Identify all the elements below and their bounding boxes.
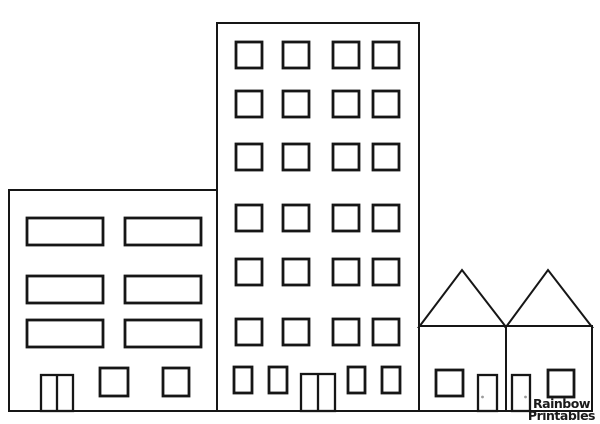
tower-building-window [333, 42, 359, 68]
tower-building-window [333, 205, 359, 231]
tower-building-window [333, 91, 359, 117]
apartment-building-window [100, 368, 128, 396]
tower-building-window [373, 205, 399, 231]
apartment-building-window [125, 218, 201, 245]
tower-building-window [283, 205, 309, 231]
apartment-building-window [125, 320, 201, 347]
tower-building-window [382, 367, 400, 393]
tower-building-window [236, 42, 262, 68]
tower-building-window [236, 205, 262, 231]
apartment-building-window [27, 320, 103, 347]
tower-building-window [373, 42, 399, 68]
tower-building-window [269, 367, 287, 393]
tower-building-window [373, 144, 399, 170]
house-left-roof [419, 270, 506, 327]
tower-building-window [373, 91, 399, 117]
tower-building-window [283, 319, 309, 345]
tower-building-window [283, 42, 309, 68]
house-right-window [548, 370, 574, 397]
watermark: Rainbow Printables [528, 398, 595, 422]
tower-building-window [373, 319, 399, 345]
tower-building-window [236, 144, 262, 170]
tower-building-window [236, 319, 262, 345]
apartment-building-window [27, 218, 103, 245]
tower-building-window [283, 144, 309, 170]
tower-building-window [234, 367, 252, 393]
house-left-door [478, 375, 497, 411]
house-right-roof [506, 270, 592, 327]
coloring-page: Rainbow Printables [0, 0, 600, 424]
house-left-doorknob [481, 396, 484, 399]
tower-building-window [333, 259, 359, 285]
tower-building-window [236, 259, 262, 285]
tower-building-window [348, 367, 365, 393]
house-left-window [436, 370, 463, 396]
house-right-doorknob [524, 396, 527, 399]
tower-building-window [373, 259, 399, 285]
tower-building-window [333, 144, 359, 170]
tower-building-window [283, 259, 309, 285]
apartment-building-window [163, 368, 189, 396]
apartment-building-window [125, 276, 201, 303]
tower-building-window [283, 91, 309, 117]
city-buildings-drawing [0, 0, 600, 424]
watermark-line2: Printables [528, 410, 595, 422]
tower-building-window [333, 319, 359, 345]
apartment-building-window [27, 276, 103, 303]
tower-building-window [236, 91, 262, 117]
